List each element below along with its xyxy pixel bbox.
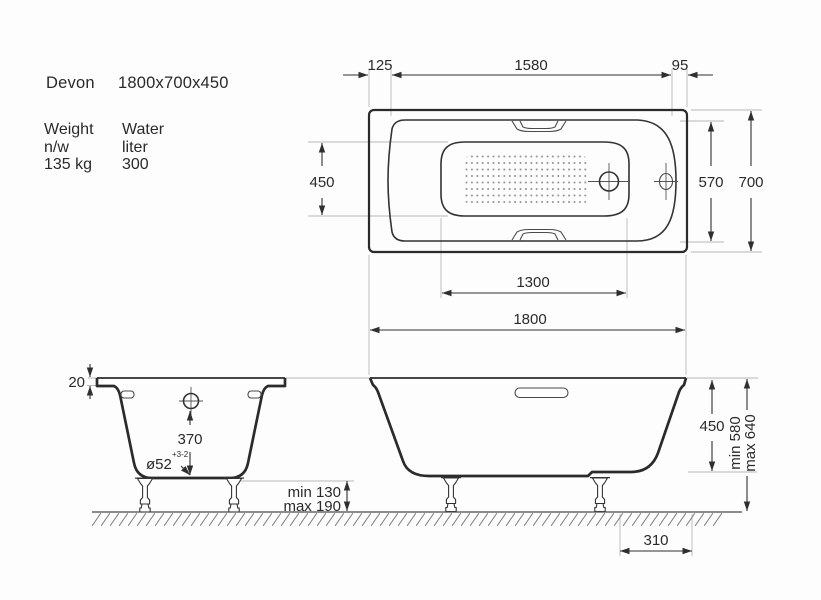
floor-hatch (92, 513, 722, 526)
dim-overall-width-700: 700 (738, 111, 763, 251)
dim-overflow-height-370: 370 (177, 411, 202, 475)
overflow-icon-end (179, 387, 203, 415)
technical-drawing: 125 1580 95 450 570 700 1300 (0, 0, 821, 600)
adjustable-foot (135, 478, 155, 512)
grip-handle-end-right (248, 391, 261, 398)
dim-overall-width-label: 700 (738, 174, 763, 191)
grip-handle-end-left (121, 391, 134, 398)
tub-profile-front (370, 378, 686, 476)
dim-depth-450: 450 (699, 380, 724, 471)
dim-rim-height-20: 20 (68, 364, 90, 399)
dim-depth-label: 450 (699, 418, 724, 435)
dim-inner-width-label: 570 (698, 174, 723, 191)
dim-rim-foot-label: 95 (672, 57, 689, 74)
top-view (369, 110, 687, 252)
dim-overall-length-label: 1800 (513, 311, 546, 328)
grip-handle-side (515, 388, 568, 398)
drain-tolerance-label: +3-2 (172, 450, 189, 459)
front-view (370, 378, 686, 512)
dim-rim-foot-95: 95 (672, 57, 713, 75)
dim-basin-width-label: 450 (309, 174, 334, 191)
dim-inner-length-1580: 1580 (392, 57, 671, 75)
overflow-icon (654, 163, 678, 200)
grip-handle-top (512, 121, 566, 132)
antislip-dots (465, 155, 587, 205)
dim-drain-offset-310: 310 (620, 532, 692, 551)
dim-rim-head-label: 125 (367, 57, 392, 74)
dim-basin-length-1300: 1300 (442, 274, 626, 293)
extension-lines (87, 69, 762, 556)
dim-basin-width-450: 450 (309, 143, 334, 215)
adjustable-foot (590, 478, 610, 512)
dim-inner-length-label: 1580 (514, 57, 547, 74)
dim-basin-length-label: 1300 (516, 274, 549, 291)
dim-drain-diameter: ø52 +3-2 (146, 450, 190, 475)
dim-floor-clearance: min 130 max 190 (283, 481, 347, 515)
adjustable-foot (441, 478, 461, 512)
dim-height-max-label: max 640 (742, 414, 759, 472)
dim-rim-height-label: 20 (68, 374, 85, 391)
drain-icon (588, 163, 630, 200)
drain-diameter-label: ø52 (146, 456, 172, 473)
dim-overflow-height-label: 370 (177, 431, 202, 448)
dim-height-min-max: min 580 max 640 (727, 379, 759, 511)
floor (92, 512, 742, 526)
adjustable-foot (224, 478, 244, 512)
dim-overall-length-1800: 1800 (370, 311, 685, 330)
dim-rim-head-125: 125 (343, 57, 393, 75)
dim-drain-offset-label: 310 (643, 532, 668, 549)
dim-clearance-max-label: max 190 (283, 498, 341, 515)
grip-handle-bottom (512, 230, 566, 241)
drawing-sheet: Devon 1800x700x450 Weight n/w 135 kg Wat… (0, 0, 821, 600)
dim-inner-width-570: 570 (698, 122, 723, 241)
